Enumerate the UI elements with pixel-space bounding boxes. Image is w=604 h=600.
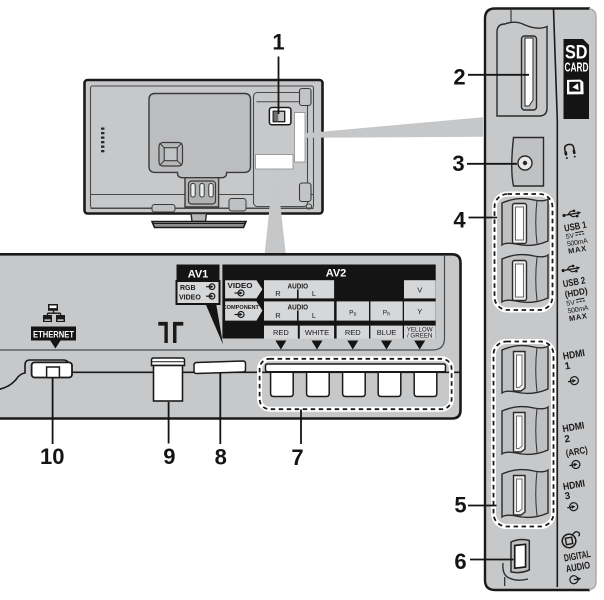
svg-text:R: R	[275, 311, 281, 320]
svg-text:RGB: RGB	[180, 285, 196, 292]
svg-text:9: 9	[163, 444, 175, 469]
svg-text:VIDEO: VIDEO	[179, 295, 201, 302]
svg-text:4: 4	[453, 208, 466, 233]
svg-text:VIDEO: VIDEO	[228, 283, 254, 290]
svg-text:BLUE: BLUE	[377, 328, 397, 337]
svg-text:1: 1	[272, 30, 284, 55]
svg-text:RED: RED	[273, 328, 289, 337]
svg-text:PR: PR	[383, 310, 391, 317]
svg-text:L: L	[312, 311, 316, 320]
svg-text:AUDIO: AUDIO	[288, 284, 309, 291]
svg-text:10: 10	[40, 444, 64, 469]
svg-text:COMPONENT: COMPONENT	[223, 305, 260, 311]
svg-text:2: 2	[453, 65, 465, 90]
svg-text:AUDIO: AUDIO	[288, 305, 309, 312]
svg-text:5: 5	[454, 493, 466, 518]
svg-text:R: R	[275, 289, 281, 298]
svg-text:8: 8	[215, 445, 227, 470]
svg-text:Y: Y	[417, 307, 422, 316]
svg-text:7: 7	[291, 445, 303, 470]
svg-text:RED: RED	[345, 328, 361, 337]
svg-text:3: 3	[452, 151, 464, 176]
svg-text:WHITE: WHITE	[305, 328, 329, 337]
svg-text:L: L	[312, 289, 316, 298]
svg-text:ETHERNET: ETHERNET	[33, 330, 74, 341]
svg-text:6: 6	[454, 549, 466, 574]
svg-text:AV2: AV2	[326, 268, 347, 280]
svg-text:PB: PB	[349, 310, 356, 317]
svg-text:CARD: CARD	[565, 61, 589, 75]
svg-text:AV1: AV1	[188, 269, 209, 281]
svg-text:V: V	[417, 286, 422, 295]
svg-text:/ GREEN: / GREEN	[407, 333, 432, 340]
